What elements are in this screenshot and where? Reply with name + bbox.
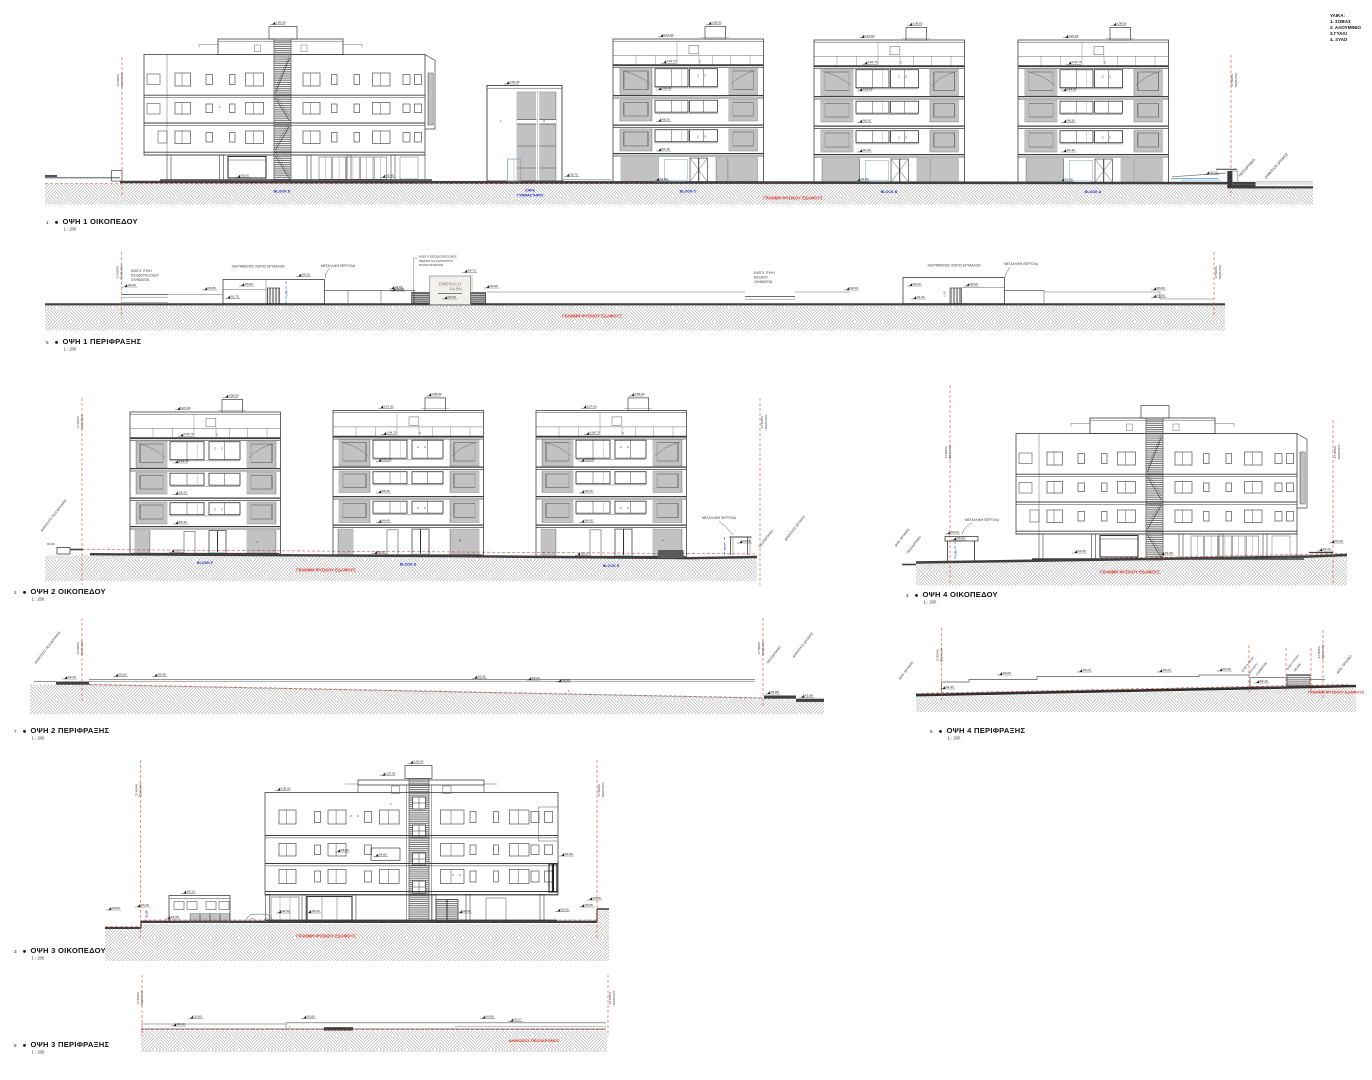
svg-text:ΟΨΗ 4 ΠΕΡΙΦΡΑΞΗΣ: ΟΨΗ 4 ΠΕΡΙΦΡΑΞΗΣ <box>947 726 1026 735</box>
svg-text:3.ΓΥΑΛΙ: 3.ΓΥΑΛΙ <box>1330 31 1347 36</box>
svg-text:ΟΨΗ 3 ΠΕΡΙΦΡΑΞΗΣ: ΟΨΗ 3 ΠΕΡΙΦΡΑΞΗΣ <box>31 1040 110 1049</box>
svg-text:92.00: 92.00 <box>448 295 456 299</box>
svg-text:BLOCK E: BLOCK E <box>603 564 620 568</box>
svg-text:108.90: 108.90 <box>913 22 923 26</box>
svg-text:106.30: 106.30 <box>281 787 291 791</box>
svg-text:ΤΕΜΑΧΙΟΥ: ΤΕΜΑΧΙΟΥ <box>612 990 616 1005</box>
svg-text:ΤΕΜΑΧΙΟΥ: ΤΕΜΑΧΙΟΥ <box>140 990 144 1005</box>
svg-text:101.90: 101.90 <box>662 86 672 90</box>
svg-text:93.00: 93.00 <box>593 896 601 900</box>
svg-text:92.10: 92.10 <box>1260 679 1268 683</box>
svg-text:ΤΕΜΑΧΙΟΥ: ΤΕΜΑΧΙΟΥ <box>1234 72 1238 87</box>
svg-text:ΤΕΜΑΧΙΟΥ: ΤΕΜΑΧΙΟΥ <box>138 782 142 797</box>
svg-text:94.40: 94.40 <box>179 520 187 524</box>
svg-text:98.30: 98.30 <box>585 489 593 493</box>
svg-text:93.34: 93.34 <box>68 675 76 679</box>
svg-text:91.95: 91.95 <box>171 915 179 919</box>
svg-text:93.20: 93.20 <box>245 282 253 286</box>
svg-text:ΜΕΤΑΛΛΙΚΗ ΠΕΡΓΟΛΑ: ΜΕΤΑΛΛΙΚΗ ΠΕΡΓΟΛΑ <box>1004 262 1039 266</box>
svg-text:ΟΨΗ 2 ΟΙΚΟΠΕΔΟΥ: ΟΨΗ 2 ΟΙΚΟΠΕΔΟΥ <box>31 587 106 596</box>
svg-text:ΓΡΑΜΜΗ ΦΥΣΙΚΟΥ ΕΔΑΦΟΥΣ: ΓΡΑΜΜΗ ΦΥΣΙΚΟΥ ΕΔΑΦΟΥΣ <box>296 934 356 939</box>
svg-text:1 : 200: 1 : 200 <box>64 227 77 232</box>
svg-text:91.68: 91.68 <box>805 694 813 698</box>
svg-text:93.29: 93.29 <box>1083 668 1091 672</box>
svg-text:94.70: 94.70 <box>468 269 476 273</box>
svg-text:93.45: 93.45 <box>478 675 486 679</box>
svg-text:107.60: 107.60 <box>181 406 191 410</box>
svg-text:94.40: 94.40 <box>863 148 871 152</box>
svg-text:108.90: 108.90 <box>635 392 645 396</box>
svg-text:92.50: 92.50 <box>312 909 320 913</box>
svg-text:94.90: 94.90 <box>565 852 573 856</box>
svg-text:ΤΕΜΑΧΙΟΥ: ΤΕΜΑΧΙΟΥ <box>1321 644 1325 659</box>
svg-text:107.60: 107.60 <box>1069 34 1079 38</box>
svg-text:91.95: 91.95 <box>1078 549 1086 553</box>
svg-text:ΜΕΤΑΛΛΙΚΗ ΠΕΡΓΟΛΑ: ΜΕΤΑΛΛΙΚΗ ΠΕΡΓΟΛΑ <box>321 264 356 268</box>
svg-text:93.65: 93.65 <box>585 903 593 907</box>
svg-text:4: 4 <box>906 593 909 598</box>
svg-text:93.10: 93.10 <box>141 903 149 907</box>
svg-text:ΓΡΑΜΜΗ ΦΥΣΙΚΟΥ ΕΔΑΦΟΥΣ: ΓΡΑΜΜΗ ΦΥΣΙΚΟΥ ΕΔΑΦΟΥΣ <box>1100 570 1160 575</box>
svg-text:3: 3 <box>14 949 17 954</box>
svg-text:100.90: 100.90 <box>276 21 286 25</box>
svg-text:1.20: 1.20 <box>145 911 149 917</box>
svg-text:2.40: 2.40 <box>285 290 289 296</box>
svg-text:ΤΕΜΑΧΙΟΥ: ΤΕΜΑΧΙΟΥ <box>764 414 768 429</box>
svg-text:ΕΙΣΟΔΟΥ: ΕΙΣΟΔΟΥ <box>754 276 769 280</box>
svg-text:ΓΡΑΜΜΗ ΦΥΣΙΚΟΥ ΕΔΑΦΟΥΣ: ΓΡΑΜΜΗ ΦΥΣΙΚΟΥ ΕΔΑΦΟΥΣ <box>1308 690 1365 695</box>
svg-text:108.90: 108.90 <box>229 394 239 398</box>
svg-text:1 : 200: 1 : 200 <box>32 597 45 602</box>
svg-text:98.30: 98.30 <box>863 119 871 123</box>
svg-text:102.40: 102.40 <box>510 80 520 84</box>
svg-text:107.60: 107.60 <box>865 34 875 38</box>
svg-text:2.40: 2.40 <box>943 291 947 297</box>
svg-text:ΤΕΜΑΧΙΟΥ: ΤΕΜΑΧΙΟΥ <box>601 782 605 797</box>
svg-text:ΤΕΜΑΧΙΟΥ: ΤΕΜΑΧΙΟΥ <box>80 414 84 429</box>
svg-text:ΤΕΜΑΧΙΟΥ: ΤΕΜΑΧΙΟΥ <box>948 444 952 459</box>
svg-text:ΕΛΕΓΧ. ΠΥΛΗ: ΕΛΕΓΧ. ΠΥΛΗ <box>131 269 152 273</box>
svg-text:ΟΨΗ 1 ΠΕΡΙΦΡΑΞΗΣ: ΟΨΗ 1 ΠΕΡΙΦΡΑΞΗΣ <box>63 337 142 346</box>
svg-text:101.90: 101.90 <box>863 87 873 91</box>
svg-text:ΚΑΛΥΜΜΕΝΟΣ ΧΩΡΟΣ ΕΚΥΒΑΛΩΝ: ΚΑΛΥΜΜΕΝΟΣ ΧΩΡΟΣ ΕΚΥΒΑΛΩΝ <box>232 265 285 269</box>
svg-text:ΥΛΙΚΑ:: ΥΛΙΚΑ: <box>1330 13 1346 18</box>
svg-text:108.90: 108.90 <box>712 21 722 25</box>
svg-text:95.15: 95.15 <box>187 890 195 894</box>
svg-text:94.40: 94.40 <box>585 519 593 523</box>
svg-text:91.60: 91.60 <box>917 295 925 299</box>
svg-text:2.40: 2.40 <box>954 550 958 556</box>
svg-text:2.40: 2.40 <box>723 544 727 550</box>
svg-text:93.00: 93.00 <box>1157 286 1165 290</box>
svg-text:107.90: 107.90 <box>386 772 396 776</box>
svg-text:ΓΥΜΝΑΣΤΗΡΙΟ: ΓΥΜΝΑΣΤΗΡΙΟ <box>517 194 544 198</box>
svg-text:93.05: 93.05 <box>241 174 249 178</box>
svg-text:93.00: 93.00 <box>970 282 978 286</box>
svg-text:108.90: 108.90 <box>1117 22 1127 26</box>
svg-text:93.80: 93.80 <box>486 1015 494 1019</box>
svg-text:92.70: 92.70 <box>1210 170 1218 174</box>
svg-text:2. ΑΛΟΥΜΙΝΙΟ: 2. ΑΛΟΥΜΙΝΙΟ <box>1330 25 1361 30</box>
svg-text:1 : 200: 1 : 200 <box>924 600 937 605</box>
svg-text:5: 5 <box>46 340 49 345</box>
svg-text:ΟΨΗ 2 ΠΕΡΙΦΡΑΞΗΣ: ΟΨΗ 2 ΠΕΡΙΦΡΑΞΗΣ <box>31 726 110 735</box>
svg-text:93.20: 93.20 <box>1163 668 1171 672</box>
svg-text:101.90: 101.90 <box>1067 87 1077 91</box>
svg-text:101.90: 101.90 <box>382 458 392 462</box>
svg-text:ΤΕΜΑΧΙΟΥ: ΤΕΜΑΧΙΟΥ <box>939 647 943 662</box>
svg-text:ΠΟΛ/ΚΑΤΟΙΚΙΩΝ: ΠΟΛ/ΚΑΤΟΙΚΙΩΝ <box>419 263 443 267</box>
svg-text:91.90: 91.90 <box>1165 551 1173 555</box>
svg-text:104.73: 104.73 <box>667 59 677 63</box>
svg-text:93.20: 93.20 <box>1335 539 1343 543</box>
svg-text:4. ΞΥΛΟ: 4. ΞΥΛΟ <box>1330 37 1348 42</box>
svg-text:92.50: 92.50 <box>282 909 290 913</box>
svg-text:90.70: 90.70 <box>570 173 578 177</box>
svg-text:92.10: 92.10 <box>1323 547 1331 551</box>
svg-text:ΚΑΛΥΜΜΕΝΟΣ ΧΩΡΟΣ ΕΚΥΒΑΛΩΝ: ΚΑΛΥΜΜΕΝΟΣ ΧΩΡΟΣ ΕΚΥΒΑΛΩΝ <box>928 264 981 268</box>
svg-text:ΔΗΜΟΣΙΟΣ ΠΕΖΟΔΡΟΜΟΣ: ΔΗΜΟΣΙΟΣ ΠΕΖΟΔΡΟΜΟΣ <box>509 1038 560 1043</box>
svg-text:BLOCK B: BLOCK B <box>881 190 898 194</box>
svg-text:104.73: 104.73 <box>1072 60 1082 64</box>
svg-text:92.00: 92.00 <box>850 286 858 290</box>
svg-text:108.90: 108.90 <box>432 392 442 396</box>
svg-text:ΓΡΑΜΜΗ ΦΥΣΙΚΟΥ ΕΔΑΦΟΥΣ: ΓΡΑΜΜΗ ΦΥΣΙΚΟΥ ΕΔΑΦΟΥΣ <box>296 568 356 573</box>
svg-text:93.00: 93.00 <box>128 283 136 287</box>
svg-text:ΜΕΤΑΛΛΙΚΗ ΠΕΡΓΟΛΑ: ΜΕΤΑΛΛΙΚΗ ΠΕΡΓΟΛΑ <box>965 518 1000 522</box>
svg-text:91.80: 91.80 <box>660 177 668 181</box>
svg-text:PARK: PARK <box>450 287 463 292</box>
svg-text:91.80: 91.80 <box>861 177 869 181</box>
svg-text:ΟΨΗ 3 ΟΙΚΟΠΕΔΟΥ: ΟΨΗ 3 ΟΙΚΟΠΕΔΟΥ <box>31 946 106 955</box>
svg-text:98.30: 98.30 <box>382 489 390 493</box>
svg-text:93.80: 93.80 <box>307 1015 315 1019</box>
svg-text:93.00: 93.00 <box>1003 671 1011 675</box>
svg-text:93.20: 93.20 <box>743 539 751 543</box>
svg-text:ΓΡΑΜΜΗ ΦΥΣΙΚΟΥ ΕΔΑΦΟΥΣ: ΓΡΑΜΜΗ ΦΥΣΙΚΟΥ ΕΔΑΦΟΥΣ <box>562 314 622 319</box>
svg-text:93.00: 93.00 <box>119 673 127 677</box>
svg-text:90.37: 90.37 <box>378 550 386 554</box>
svg-text:94.40: 94.40 <box>662 147 670 151</box>
svg-text:98.30: 98.30 <box>179 491 187 495</box>
svg-text:ΤΕΜΑΧΙΟΥ: ΤΕΜΑΧΙΟΥ <box>119 264 123 279</box>
svg-text:ΓΡΑΜΜΗ ΦΥΣΙΚΟΥ ΕΔΑΦΟΥΣ: ΓΡΑΜΜΗ ΦΥΣΙΚΟΥ ΕΔΑΦΟΥΣ <box>763 196 823 201</box>
svg-text:93.27: 93.27 <box>514 1018 522 1022</box>
svg-text:1 : 200: 1 : 200 <box>32 1050 45 1055</box>
svg-text:BLOCK D: BLOCK D <box>274 190 291 194</box>
svg-text:104.73: 104.73 <box>590 431 600 435</box>
svg-text:BLOCK A: BLOCK A <box>1085 190 1102 194</box>
svg-text:BLOCK F: BLOCK F <box>197 561 214 565</box>
svg-text:ΟΧΗΜΑΤΩΝ: ΟΧΗΜΑΤΩΝ <box>754 280 773 284</box>
svg-text:ΕΙΣΟΔΟΥ/ΕΞΟΔΟΥ: ΕΙΣΟΔΟΥ/ΕΞΟΔΟΥ <box>131 274 160 278</box>
svg-text:93.20: 93.20 <box>951 530 959 534</box>
svg-text:ΤΕΜΑΧΙΟΥ: ΤΕΜΑΧΙΟΥ <box>80 640 84 655</box>
svg-text:92.50: 92.50 <box>463 909 471 913</box>
svg-text:109.30: 109.30 <box>414 760 424 764</box>
svg-text:ΤΕΜΑΧΙΟΥ: ΤΕΜΑΧΙΟΥ <box>1337 444 1341 459</box>
svg-text:ΟΧΗΜΑΤΩΝ: ΟΧΗΜΑΤΩΝ <box>131 278 150 282</box>
svg-text:90.50: 90.50 <box>112 906 120 910</box>
svg-text:91.60: 91.60 <box>1157 294 1165 298</box>
svg-text:90.37: 90.37 <box>175 548 183 552</box>
svg-text:101.90: 101.90 <box>585 458 595 462</box>
svg-text:90.37: 90.37 <box>581 551 589 555</box>
svg-text:ΤΕΜΑΧΙΟΥ: ΤΕΜΑΧΙΟΥ <box>1218 264 1222 279</box>
svg-text:1. ΣΟΒΑΣ: 1. ΣΟΒΑΣ <box>1330 19 1351 24</box>
svg-text:1 : 200: 1 : 200 <box>32 956 45 961</box>
svg-text:91.75: 91.75 <box>231 295 239 299</box>
svg-text:BLOCK E: BLOCK E <box>400 563 417 567</box>
svg-text:91.80: 91.80 <box>1065 177 1073 181</box>
svg-text:93.20: 93.20 <box>532 676 540 680</box>
svg-text:93.80: 93.80 <box>194 1015 202 1019</box>
svg-text:93.45: 93.45 <box>158 673 166 677</box>
svg-text:2: 2 <box>14 590 17 595</box>
svg-text:ΟΨΗ 4 ΟΙΚΟΠΕΔΟΥ: ΟΨΗ 4 ΟΙΚΟΠΕΔΟΥ <box>923 590 998 599</box>
svg-text:94.40: 94.40 <box>382 519 390 523</box>
svg-text:93.00: 93.00 <box>490 284 498 288</box>
svg-text:98.30: 98.30 <box>1067 119 1075 123</box>
svg-text:ΕΛΕΓΧ. ΠΥΛΗ: ΕΛΕΓΧ. ΠΥΛΗ <box>754 271 775 275</box>
svg-text:ΜΕΤΑΛΛΙΚΗ ΠΕΡΓΟΛΑ: ΜΕΤΑΛΛΙΚΗ ΠΕΡΓΟΛΑ <box>702 516 737 520</box>
svg-text:1 : 200: 1 : 200 <box>948 736 961 741</box>
svg-text:ΤΕΜΑΧΙΟΥ: ΤΕΜΑΧΙΟΥ <box>120 72 124 87</box>
svg-text:92.99: 92.99 <box>562 678 570 682</box>
svg-text:ΟΨΗ 1 ΟΙΚΟΠΕΔΟΥ: ΟΨΗ 1 ΟΙΚΟΠΕΔΟΥ <box>63 217 138 226</box>
svg-text:107.60: 107.60 <box>384 404 394 408</box>
svg-text:93.40: 93.40 <box>1223 667 1231 671</box>
svg-text:6: 6 <box>930 729 933 734</box>
svg-text:93.00: 93.00 <box>396 287 404 291</box>
svg-text:104.73: 104.73 <box>387 431 397 435</box>
svg-text:101.90: 101.90 <box>179 459 189 463</box>
svg-text:1 : 200: 1 : 200 <box>64 347 77 352</box>
svg-text:93.00: 93.00 <box>913 282 921 286</box>
svg-text:1: 1 <box>46 220 49 225</box>
svg-text:93.05: 93.05 <box>386 174 394 178</box>
svg-text:93.10: 93.10 <box>177 1022 185 1026</box>
svg-text:1 : 200: 1 : 200 <box>32 736 45 741</box>
svg-text:BLOCK C: BLOCK C <box>680 190 697 194</box>
svg-text:92.65: 92.65 <box>561 908 569 912</box>
svg-text:98.30: 98.30 <box>662 118 670 122</box>
svg-text:107.60: 107.60 <box>664 33 674 37</box>
svg-text:93.20: 93.20 <box>957 536 965 540</box>
svg-text:104.73: 104.73 <box>868 60 878 64</box>
svg-text:94.80: 94.80 <box>379 853 387 857</box>
svg-text:94.40: 94.40 <box>1067 148 1075 152</box>
svg-text:96.80: 96.80 <box>341 848 349 852</box>
svg-text:91.88: 91.88 <box>771 690 779 694</box>
svg-text:107.60: 107.60 <box>587 404 597 408</box>
svg-text:7: 7 <box>14 729 17 734</box>
svg-text:CAFE: CAFE <box>525 189 536 193</box>
svg-text:94.25: 94.25 <box>302 273 310 277</box>
svg-text:93.00: 93.00 <box>47 542 55 546</box>
svg-text:ΤΕΜΑΧΙΟΥ: ΤΕΜΑΧΙΟΥ <box>761 640 765 655</box>
svg-text:91.63: 91.63 <box>946 685 954 689</box>
svg-text:104.73: 104.73 <box>184 432 194 436</box>
svg-text:8: 8 <box>14 1043 17 1048</box>
svg-text:93.85: 93.85 <box>208 286 216 290</box>
